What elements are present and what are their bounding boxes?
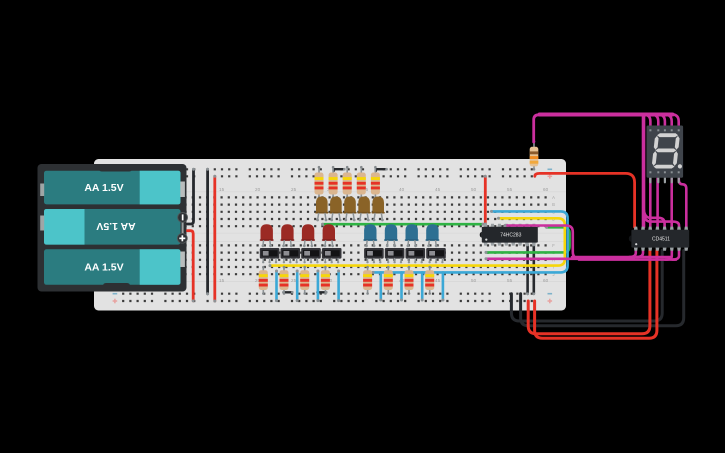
svg-text:55: 55 [507,187,513,192]
svg-text:20: 20 [255,187,261,192]
svg-text:15: 15 [219,278,225,283]
svg-text:40: 40 [399,187,405,192]
svg-text:F: F [552,243,555,248]
svg-text:60: 60 [543,278,549,283]
svg-text:15: 15 [219,187,225,192]
svg-text:45: 45 [435,278,441,283]
svg-text:25: 25 [291,187,297,192]
svg-text:74HC283: 74HC283 [500,233,521,239]
svg-text:A: A [552,195,555,200]
svg-text:50: 50 [471,187,477,192]
svg-text:45: 45 [435,187,441,192]
svg-text:CD4511: CD4511 [652,237,670,243]
svg-text:55: 55 [507,278,513,283]
svg-text:AA 1.5V: AA 1.5V [96,220,135,232]
svg-text:AA 1.5V: AA 1.5V [84,262,123,274]
svg-text:50: 50 [471,278,477,283]
svg-text:B: B [552,202,555,207]
svg-text:25: 25 [291,278,297,283]
svg-text:AA 1.5V: AA 1.5V [84,182,123,194]
svg-text:60: 60 [543,187,549,192]
